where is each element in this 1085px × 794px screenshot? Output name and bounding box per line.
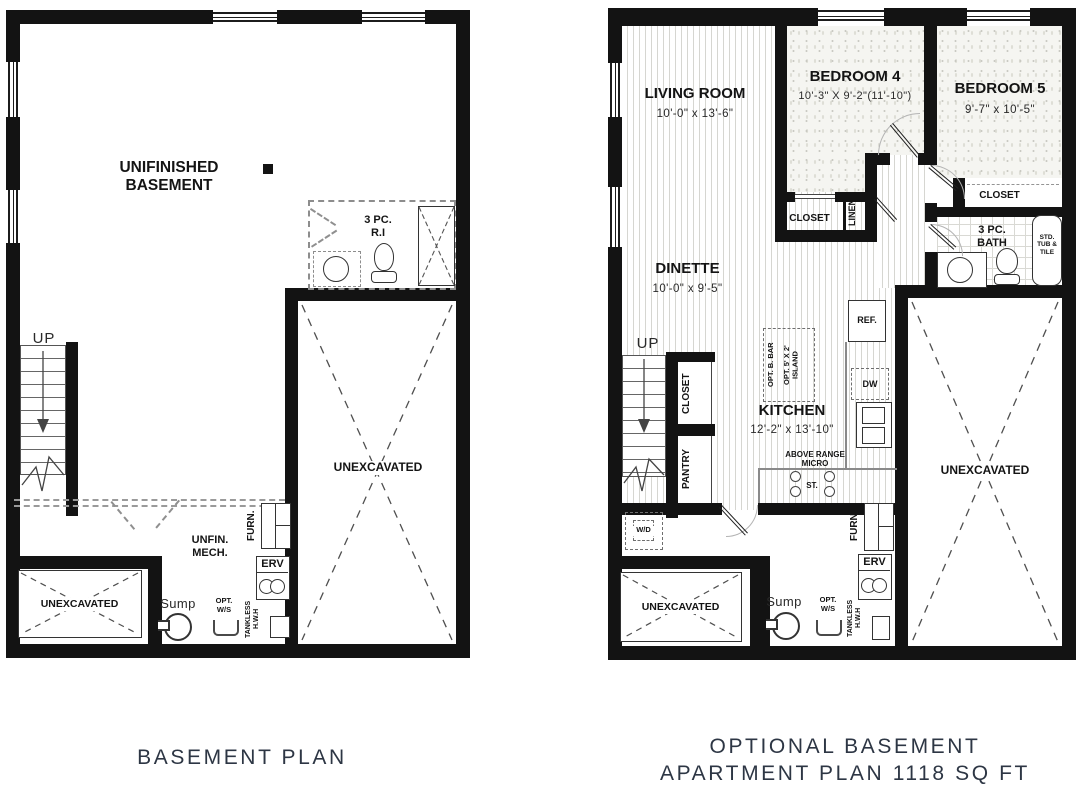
window [610, 187, 620, 247]
wall [1062, 8, 1076, 660]
window [967, 10, 1030, 21]
room-label-bath: 3 PC. BATH [960, 224, 1024, 252]
water-softener-icon [816, 620, 842, 636]
wall [6, 556, 162, 569]
room-label-unfin-mech: UNFIN. MECH. [180, 534, 240, 562]
label-rough-in: 3 PC. R.I [348, 214, 408, 242]
label-sump: Sump [158, 597, 198, 612]
room-label-bedroom5: BEDROOM 5 [940, 80, 1060, 97]
label-up: UP [634, 335, 662, 352]
closet-door-track [795, 194, 835, 199]
sump-notch [158, 620, 170, 631]
wall [884, 8, 967, 26]
wall [925, 252, 937, 288]
wall [775, 26, 787, 242]
sink-icon [947, 257, 973, 283]
wall [277, 10, 362, 24]
closet-rod-line [967, 184, 1059, 185]
label-closet-bedroom5: CLOSET [972, 190, 1027, 202]
wall [6, 644, 470, 658]
label-opt-bar: OPT. B. BAR [767, 334, 779, 396]
label-linen: LINEN [847, 195, 862, 231]
stair-arrow-icon [20, 345, 66, 520]
room-label-kitchen: KITCHEN [748, 402, 836, 419]
label-sump: Sump [764, 595, 804, 610]
wall [895, 285, 908, 646]
stove-burner-icon [824, 471, 835, 482]
stove-burner-icon [790, 486, 801, 497]
wall [6, 117, 20, 190]
caption-basement-plan: BASEMENT PLAN [62, 744, 422, 772]
label-tub: STD. TUB & TILE [1033, 234, 1061, 264]
label-opt-ws: OPT. W/S [812, 596, 844, 616]
wall [666, 424, 715, 436]
label-pantry: PANTRY [681, 440, 696, 498]
window [213, 12, 277, 22]
furnace-icon [261, 503, 291, 549]
label-opt-ws: OPT. W/S [208, 597, 240, 617]
area-label-unexcavated: UNEXCAVATED [300, 461, 456, 475]
wall [608, 8, 818, 26]
wall [608, 646, 1076, 660]
area-label-unexcavated: UNEXCAVATED [19, 598, 140, 611]
wall [6, 10, 213, 24]
water-softener-icon [213, 620, 239, 636]
sink-icon [323, 256, 349, 282]
toilet-tank-icon [371, 271, 397, 283]
kitchen-sink-icon [856, 402, 892, 448]
wall [6, 10, 20, 62]
room-label-dinette: DINETTE [645, 260, 730, 277]
tankless-heater-icon [872, 616, 890, 640]
washer-dryer: W/D [625, 512, 663, 550]
dim-label-bedroom4: 10'-3" X 9'-2"(11'-10") [785, 90, 925, 104]
window [8, 62, 18, 117]
label-up: UP [30, 330, 58, 347]
wall [456, 10, 470, 658]
shower-x-pattern [418, 206, 455, 286]
sump-notch [766, 619, 778, 630]
wall [608, 556, 770, 569]
erv-fan-icon [872, 578, 887, 593]
window [362, 12, 425, 22]
stove-burner-icon [790, 471, 801, 482]
dim-label-kitchen: 12'-2" x 13'-10" [744, 424, 840, 438]
window [610, 63, 620, 117]
furnace-icon [864, 503, 894, 551]
label-dishwasher: DW [853, 379, 887, 390]
label-furnace: FURN. [246, 504, 260, 548]
wall [608, 8, 622, 63]
wall [843, 202, 846, 230]
caption-optional-basement-plan: OPTIONAL BASEMENT APARTMENT PLAN 1118 SQ… [600, 733, 1085, 789]
label-closet-bedroom4: CLOSET [782, 213, 837, 225]
wall [925, 203, 937, 222]
dim-label-living: 10'-0" x 13'-6" [625, 108, 765, 123]
wall [924, 26, 937, 162]
erv-fan-icon [270, 579, 285, 594]
stove-burner-icon [824, 486, 835, 497]
wall [608, 117, 622, 187]
label-marker-square [263, 164, 273, 174]
erv-unit: ERV [256, 556, 290, 600]
area-label-unexcavated: UNEXCAVATED [621, 601, 740, 614]
label-tankless: TANKLESS H.W.H [847, 594, 870, 642]
carpet-floor-bedroom4 [787, 155, 877, 192]
tankless-heater-icon [270, 616, 290, 638]
sink-basin [862, 407, 885, 424]
dim-label-bedroom5: 9'-7" x 10'-5" [940, 104, 1060, 118]
dim-label-dinette: 10'-0" x 9'-5" [640, 283, 735, 297]
label-erv: ERV [859, 555, 890, 571]
unexcavated-area: UNEXCAVATED [620, 572, 742, 642]
floor-plan-sheet: UNIFINISHED BASEMENT 3 PC. R.I UNEXCAVAT… [0, 0, 1085, 794]
unexcavated-area: UNEXCAVATED [18, 570, 142, 638]
label-erv: ERV [257, 557, 288, 573]
label-stove: ST. [803, 481, 821, 491]
beam-line [14, 499, 285, 507]
toilet-tank-icon [994, 274, 1020, 285]
counter-edge [758, 468, 760, 503]
room-label-unfinished-basement: UNIFINISHED BASEMENT [80, 159, 258, 177]
window [8, 190, 18, 243]
label-above-range-micro: ABOVE RANGE MICRO [775, 450, 855, 468]
label-washer-dryer: W/D [627, 526, 660, 536]
label-furnace: FURN. [849, 503, 863, 549]
stair-arrow-icon [622, 355, 666, 505]
label-opt-island: OPT. 5' X 2' ISLAND [783, 334, 807, 396]
room-label-living: LIVING ROOM [625, 85, 765, 103]
window [818, 10, 884, 21]
toilet-bowl-icon [374, 243, 394, 271]
wall [666, 352, 715, 362]
carpet-floor-bedroom5 [936, 26, 1062, 178]
label-fridge: REF. [850, 315, 884, 326]
wall [66, 342, 78, 516]
label-tankless: TANKLESS H.W.H [245, 596, 268, 642]
wall [918, 153, 937, 165]
sink-basin [862, 427, 885, 444]
label-closet-hall: CLOSET [681, 368, 696, 420]
room-label-bedroom4: BEDROOM 4 [790, 68, 920, 85]
area-label-unexcavated: UNEXCAVATED [908, 464, 1062, 478]
wood-floor-hall [877, 155, 925, 288]
wall [775, 192, 795, 202]
wall [775, 230, 877, 242]
toilet-bowl-icon [996, 248, 1018, 274]
